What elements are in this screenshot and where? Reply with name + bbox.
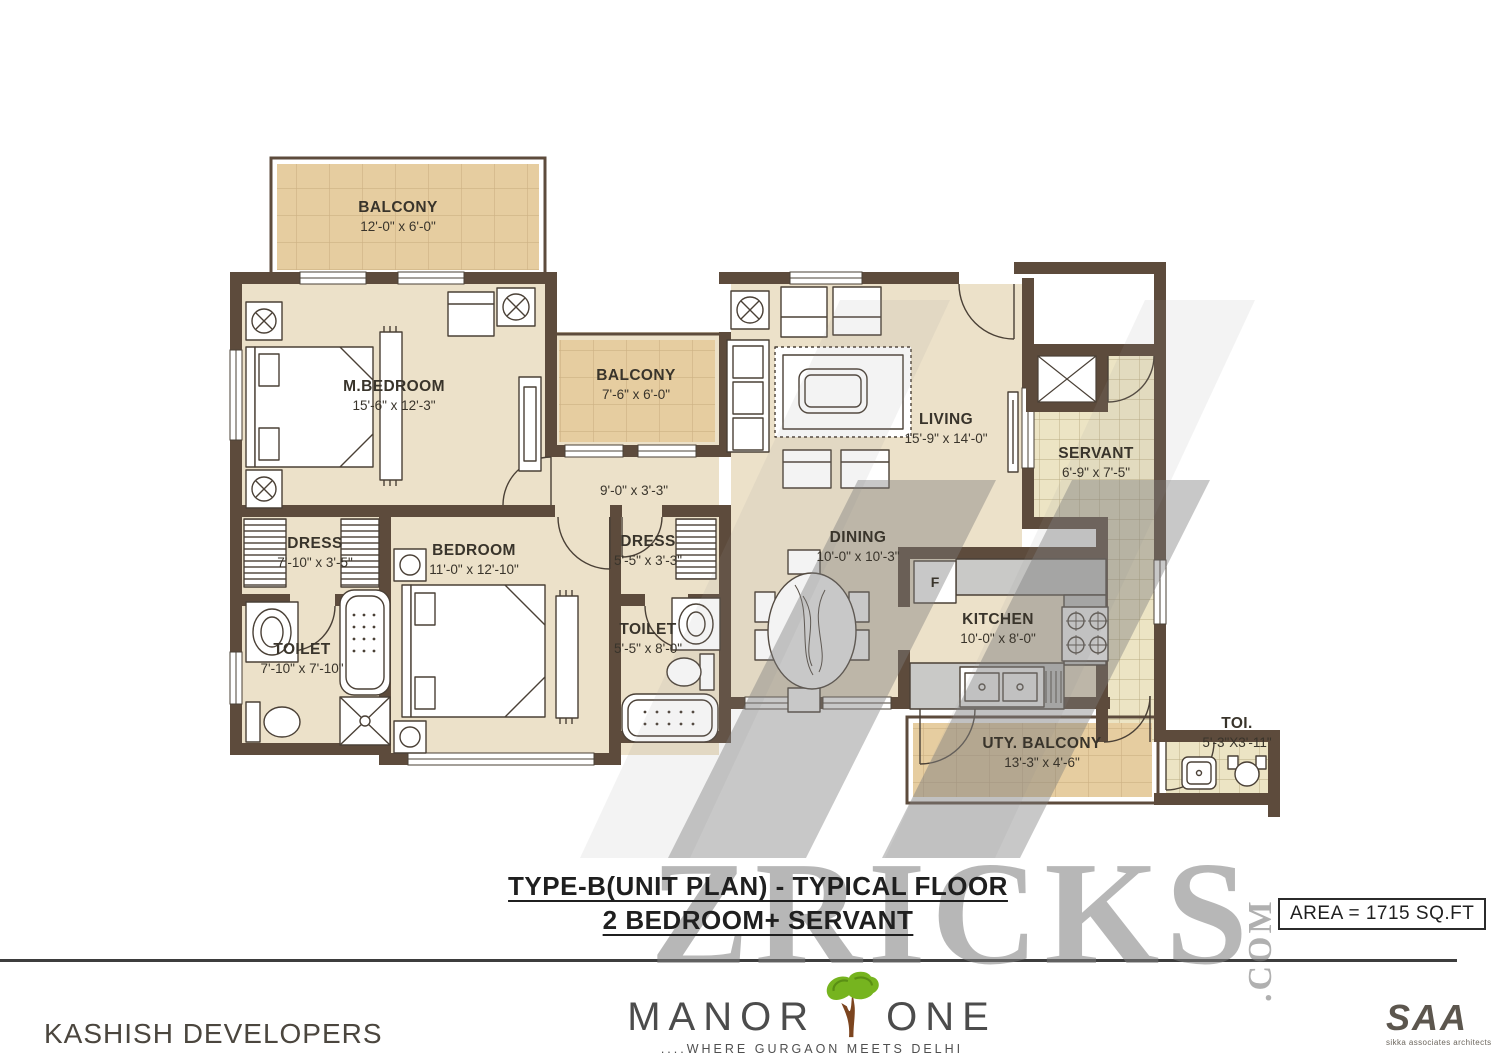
room-label-bedroom-2: BEDROOM11'-0" x 12'-10" (429, 541, 519, 579)
duct-shaft (1026, 346, 1108, 412)
developer-name: KASHISH DEVELOPERS (44, 1018, 383, 1050)
room-label-m-bedroom: M.BEDROOM15'-6" x 12'-3" (343, 377, 445, 415)
room-label-dress-1: DRESS7'-10" x 3'-5" (277, 534, 353, 572)
area-badge: AREA = 1715 SQ.FT (1278, 898, 1486, 930)
fridge-label: F (931, 574, 940, 590)
master-wardrobe-icon (519, 377, 541, 471)
room-label-toi: TOI.5'-3"X3'-11" (1202, 714, 1271, 752)
room-label-uty-balcony: UTY. BALCONY13'-3" x 4'-6" (982, 734, 1101, 772)
room-label-passage: 9'-0" x 3'-3" (600, 482, 668, 500)
room-label-dress-2: DRESS5'-5" x 3'-3" (614, 532, 682, 570)
brand-word-one: ONE (886, 997, 997, 1037)
brand-word-manor: MANOR (627, 997, 816, 1037)
master-chair-icon (448, 292, 494, 336)
room-label-balcony-mid: BALCONY7'-6" x 6'-0" (596, 366, 675, 404)
living-tv-icon (1008, 392, 1018, 472)
title-block: TYPE-B(UNIT PLAN) - TYPICAL FLOOR 2 BEDR… (508, 870, 1008, 938)
room-label-kitchen: KITCHEN10'-0" x 8'-0" (960, 610, 1036, 648)
room-label-toilet-1: TOILET7'-10" x 7'-10" (260, 640, 343, 678)
tree-icon (818, 968, 884, 1038)
plan-title-line2: 2 BEDROOM+ SERVANT (508, 904, 1008, 938)
room-label-living: LIVING15'-9" x 14'-0" (904, 410, 987, 448)
watermark-com: .COM (1242, 898, 1280, 1002)
floor-plan-page: BALCONY12'-0" x 6'-0" M.BEDROOM15'-6" x … (0, 0, 1500, 1060)
architect-logo: SAA sikka associates architects (1386, 1000, 1492, 1047)
architect-logo-text: SAA (1386, 1000, 1492, 1036)
brand-tagline: ....WHERE GURGAON MEETS DELHI (627, 1042, 997, 1056)
master-fan-icon (497, 288, 535, 326)
brand-logo: MANOR ONE ....WHERE GURGAON MEETS DELHI (627, 968, 997, 1056)
architect-caption: sikka associates architects (1386, 1038, 1492, 1047)
room-label-servant: SERVANT6'-9" x 7'-5" (1058, 444, 1133, 482)
room-label-toilet-2: TOILET5'-5" x 8'-0" (614, 620, 682, 658)
room-label-dining: DINING10'-0" x 10'-3" (816, 528, 899, 566)
plan-title-line1: TYPE-B(UNIT PLAN) - TYPICAL FLOOR (508, 870, 1008, 904)
room-label-balcony-top: BALCONY12'-0" x 6'-0" (358, 198, 437, 236)
living-fan-icon (731, 291, 769, 329)
